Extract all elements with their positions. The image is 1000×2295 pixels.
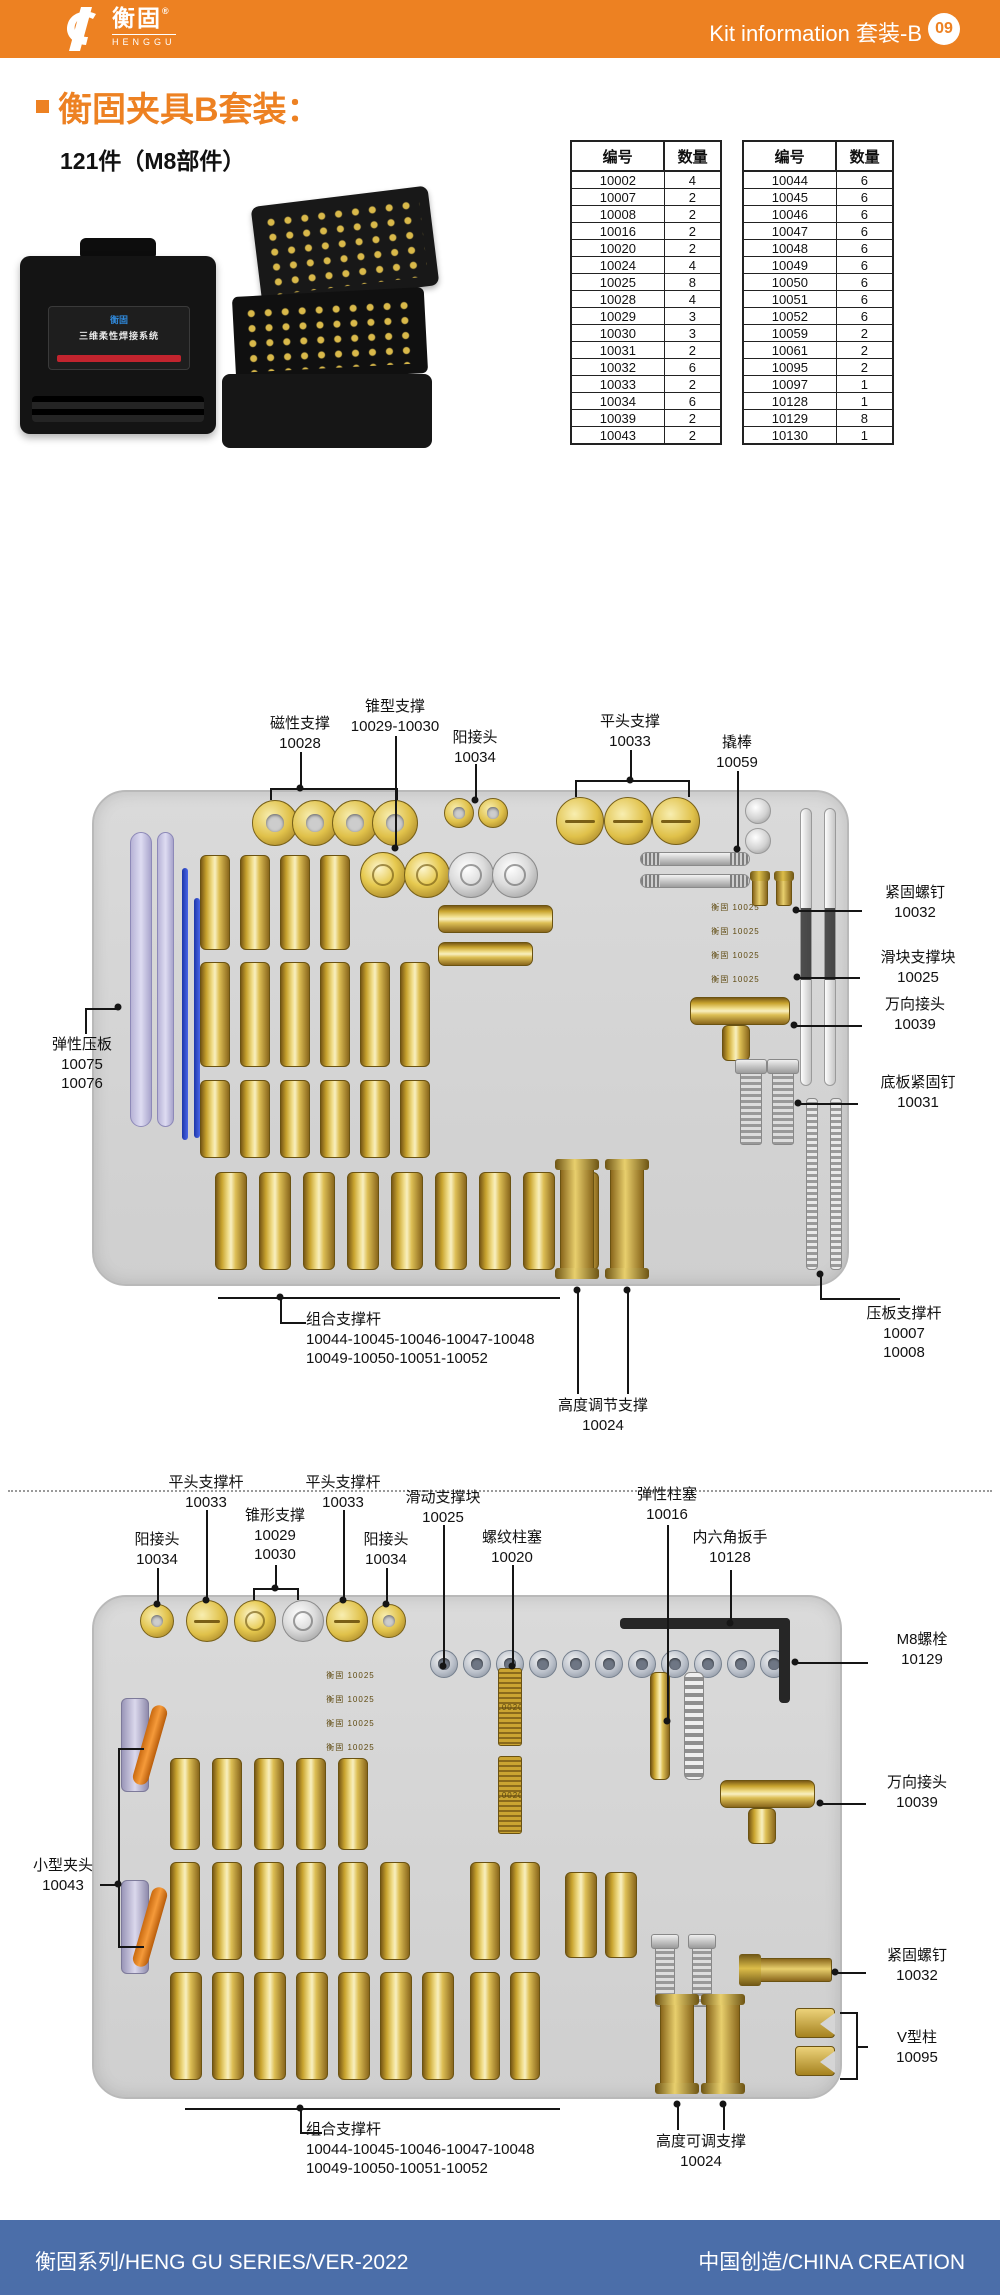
gold-cylinder-part bbox=[720, 1780, 815, 1808]
table-row: 100202 bbox=[571, 240, 721, 257]
gold-cylinder-part bbox=[510, 1862, 540, 1960]
connector-line bbox=[280, 1297, 282, 1322]
gold-cylinder-part bbox=[280, 1080, 310, 1158]
connector-dot bbox=[664, 1718, 671, 1725]
table-row: 100526 bbox=[743, 308, 893, 325]
height-adjust-support-part bbox=[706, 1995, 740, 2093]
gold-ring-support-part bbox=[478, 798, 508, 828]
case-logo-icon: 衡固 bbox=[49, 313, 189, 326]
part-number-cell: 10097 bbox=[743, 376, 836, 393]
gold-cylinder-part bbox=[523, 1172, 555, 1270]
quantity-cell: 2 bbox=[664, 206, 721, 223]
connector-line bbox=[118, 1748, 144, 1750]
connector-dot bbox=[440, 1663, 447, 1670]
page-title: 衡固夹具B套装： bbox=[58, 82, 321, 131]
connector-line bbox=[835, 1972, 866, 1974]
henggu-logo-icon bbox=[60, 6, 106, 52]
connector-line bbox=[627, 1288, 629, 1394]
part-number-cell: 10043 bbox=[571, 427, 664, 445]
label-male-connector: 阳接头 10034 bbox=[435, 728, 515, 767]
table-row: 100258 bbox=[571, 274, 721, 291]
connector-dot bbox=[154, 1601, 161, 1608]
part-number-cell: 10128 bbox=[743, 393, 836, 410]
gold-cylinder-part bbox=[212, 1972, 244, 2080]
m8-bolt-part bbox=[727, 1650, 755, 1678]
slide-support-block-part: 衡固 10025 bbox=[258, 1668, 443, 1683]
catalog-page: 衡固® HENGGU Kit information 套装-B 09 衡固夹具B… bbox=[0, 0, 1000, 2295]
column-header-quantity: 数量 bbox=[836, 141, 893, 171]
connector-dot bbox=[674, 2101, 681, 2108]
m8-bolt-part bbox=[529, 1650, 557, 1678]
label-combo-support-rods: 组合支撑杆 10044-10045-10046-10047-10048 1004… bbox=[306, 1310, 606, 1369]
quantity-cell: 2 bbox=[664, 223, 721, 240]
silver-cone-support-part bbox=[448, 852, 494, 898]
gold-cylinder-part bbox=[240, 1080, 270, 1158]
quantity-cell: 2 bbox=[664, 376, 721, 393]
case-red-stripe bbox=[57, 355, 181, 362]
gold-cylinder-part bbox=[435, 1172, 467, 1270]
case-label-plate: 衡固 三维柔性焊接系统 bbox=[48, 306, 190, 370]
gold-cylinder-part bbox=[200, 1080, 230, 1158]
connector-dot bbox=[794, 974, 801, 981]
connector-line bbox=[395, 736, 397, 848]
quantity-cell: 2 bbox=[664, 427, 721, 445]
connector-dot bbox=[793, 907, 800, 914]
gold-cylinder-part bbox=[215, 1172, 247, 1270]
gold-cylinder-part bbox=[254, 1758, 284, 1850]
gold-cylinder-part bbox=[438, 905, 553, 933]
table-row: 100952 bbox=[743, 359, 893, 376]
connector-line bbox=[85, 1008, 87, 1034]
connector-line bbox=[118, 1946, 144, 1948]
connector-dot bbox=[627, 777, 634, 784]
part-number-cell: 10007 bbox=[571, 189, 664, 206]
threaded-rod-part bbox=[806, 1098, 818, 1270]
quantity-cell: 3 bbox=[664, 325, 721, 342]
part-number-cell: 10044 bbox=[743, 171, 836, 189]
connector-dot bbox=[624, 1287, 631, 1294]
press-plate-rod-part bbox=[824, 808, 836, 1086]
height-adjust-support-part bbox=[610, 1160, 644, 1278]
connector-dot bbox=[720, 2101, 727, 2108]
fastening-screw-part bbox=[776, 872, 792, 906]
table-row: 100293 bbox=[571, 308, 721, 325]
gold-cylinder-part bbox=[565, 1872, 597, 1958]
connector-line bbox=[300, 2132, 322, 2134]
m8-bolt-part bbox=[562, 1650, 590, 1678]
label-height-adjust-support: 高度调节支撑 10024 bbox=[547, 1396, 659, 1435]
gold-cylinder-part bbox=[296, 1862, 326, 1960]
connector-line bbox=[118, 1748, 120, 1948]
brand-name-en: HENGGU bbox=[112, 34, 176, 47]
column-header-part-number: 编号 bbox=[743, 141, 836, 171]
connector-line bbox=[798, 1103, 858, 1105]
gold-cone-support-part bbox=[404, 852, 450, 898]
connector-line bbox=[343, 1510, 345, 1602]
threaded-plug-part: 10020 bbox=[498, 1756, 522, 1834]
case-body: 衡固 三维柔性焊接系统 bbox=[20, 256, 216, 434]
connector-dot bbox=[574, 1287, 581, 1294]
gold-cylinder-part bbox=[320, 1080, 350, 1158]
part-number-cell: 10052 bbox=[743, 308, 836, 325]
gold-flat-disc-part bbox=[556, 797, 604, 845]
connector-dot bbox=[297, 785, 304, 792]
quantity-cell: 8 bbox=[836, 410, 893, 427]
elastic-press-plate-part bbox=[130, 832, 152, 1127]
slide-support-block-part: 衡固 10025 bbox=[678, 972, 793, 987]
slide-support-block-part: 衡固 10025 bbox=[678, 924, 793, 939]
gold-cylinder-part bbox=[360, 1080, 390, 1158]
gold-cylinder-part bbox=[470, 1862, 500, 1960]
table-row: 100971 bbox=[743, 376, 893, 393]
m8-bolt-part bbox=[463, 1650, 491, 1678]
quantity-cell: 1 bbox=[836, 427, 893, 445]
label-pry-bar: 撬棒 10059 bbox=[697, 733, 777, 772]
quantity-cell: 2 bbox=[664, 342, 721, 359]
gold-cylinder-part bbox=[605, 1872, 637, 1958]
quantity-cell: 6 bbox=[836, 206, 893, 223]
connector-line bbox=[840, 2012, 856, 2014]
gold-cylinder-part bbox=[200, 962, 230, 1067]
header-bar: 衡固® HENGGU Kit information 套装-B 09 bbox=[0, 0, 1000, 58]
connector-line bbox=[667, 1525, 669, 1723]
kit-parts-dots bbox=[242, 298, 417, 373]
gold-cylinder-part bbox=[254, 1972, 286, 2080]
table-row: 100244 bbox=[571, 257, 721, 274]
table-row: 100612 bbox=[743, 342, 893, 359]
product-photo-open-case bbox=[222, 196, 437, 452]
part-number-cell: 10130 bbox=[743, 427, 836, 445]
part-number-cell: 10050 bbox=[743, 274, 836, 291]
gold-cylinder-part bbox=[400, 1080, 430, 1158]
registered-mark: ® bbox=[162, 6, 171, 16]
table-row: 100446 bbox=[743, 171, 893, 189]
connector-dot bbox=[727, 1620, 734, 1627]
part-number-cell: 10032 bbox=[571, 359, 664, 376]
base-fastening-pin-part bbox=[740, 1060, 762, 1145]
slide-support-block-part: 衡固 10025 bbox=[258, 1716, 443, 1731]
part-number-cell: 10048 bbox=[743, 240, 836, 257]
gold-cylinder-part bbox=[380, 1972, 412, 2080]
product-photo-closed-case: 衡固 三维柔性焊接系统 bbox=[20, 238, 216, 434]
connector-line bbox=[794, 1025, 862, 1027]
case-label-text: 三维柔性焊接系统 bbox=[49, 329, 189, 342]
quantity-cell: 6 bbox=[836, 308, 893, 325]
label-m8-bolt: M8螺栓 10129 bbox=[872, 1630, 972, 1669]
part-number-cell: 10047 bbox=[743, 223, 836, 240]
slide-support-block-part: 衡固 10025 bbox=[258, 1740, 443, 1755]
gold-cylinder-part bbox=[280, 962, 310, 1067]
gold-cylinder-part bbox=[748, 1808, 776, 1844]
table-row: 100432 bbox=[571, 427, 721, 445]
slide-support-block-part: 衡固 10025 bbox=[258, 1692, 443, 1707]
part-number-cell: 10129 bbox=[743, 410, 836, 427]
gold-cylinder-part bbox=[259, 1172, 291, 1270]
label-hex-wrench: 内六角扳手 10128 bbox=[672, 1528, 788, 1567]
connector-dot bbox=[734, 846, 741, 853]
gold-cylinder-part bbox=[479, 1172, 511, 1270]
label-spring-plunger: 弹性柱塞 10016 bbox=[622, 1485, 712, 1524]
table-row: 100592 bbox=[743, 325, 893, 342]
connector-dot bbox=[792, 1659, 799, 1666]
table-row: 101301 bbox=[743, 427, 893, 445]
silver-cone-support-part bbox=[492, 852, 538, 898]
quantity-cell: 6 bbox=[664, 393, 721, 410]
part-number-cell: 10039 bbox=[571, 410, 664, 427]
title-bullet-icon bbox=[36, 100, 49, 113]
connector-dot bbox=[297, 2105, 304, 2112]
brand-block: 衡固® HENGGU bbox=[112, 7, 176, 47]
label-slide-block: 滑块支撑块 10025 bbox=[858, 948, 978, 987]
table-row: 100082 bbox=[571, 206, 721, 223]
connector-dot bbox=[203, 1597, 210, 1604]
label-universal-joint: 万向接头 10039 bbox=[860, 995, 970, 1034]
label-press-plate-rod: 压板支撑杆 10007 10008 bbox=[848, 1304, 960, 1363]
part-number-cell: 10020 bbox=[571, 240, 664, 257]
connector-line bbox=[737, 771, 739, 851]
gold-cylinder-part bbox=[510, 1972, 540, 2080]
label-cone-support: 锥形支撑 10029 10030 bbox=[232, 1506, 318, 1565]
footer-creation-text: 中国创造/CHINA CREATION bbox=[698, 2246, 965, 2276]
gold-ring-support-part bbox=[140, 1604, 174, 1638]
quantity-cell: 2 bbox=[664, 240, 721, 257]
label-magnetic-support: 磁性支撑 10028 bbox=[255, 714, 345, 753]
connector-dot bbox=[817, 1800, 824, 1807]
part-number-cell: 10031 bbox=[571, 342, 664, 359]
connector-line bbox=[270, 788, 272, 800]
part-number-cell: 10051 bbox=[743, 291, 836, 308]
gold-cylinder-part bbox=[296, 1972, 328, 2080]
hex-wrench-part bbox=[620, 1618, 790, 1629]
pry-bar-part bbox=[640, 852, 750, 866]
connector-dot bbox=[509, 1663, 516, 1670]
gold-cylinder-part bbox=[722, 1025, 750, 1061]
table-row: 100506 bbox=[743, 274, 893, 291]
gold-cone-support-part bbox=[234, 1600, 276, 1642]
connector-line bbox=[688, 780, 690, 797]
quantity-cell: 1 bbox=[836, 393, 893, 410]
gold-ring-support-part bbox=[372, 1604, 406, 1638]
connector-line bbox=[300, 752, 302, 788]
parts-table-right: 编号 数量 1004461004561004661004761004861004… bbox=[742, 140, 894, 445]
label-flat-head-support: 平头支撑 10033 bbox=[583, 712, 677, 751]
gold-cylinder-part bbox=[690, 997, 790, 1025]
part-number-cell: 10095 bbox=[743, 359, 836, 376]
connector-dot bbox=[115, 1881, 122, 1888]
table-row: 100476 bbox=[743, 223, 893, 240]
fastening-screw-part bbox=[752, 872, 768, 906]
table-row: 100162 bbox=[571, 223, 721, 240]
gold-cylinder-part bbox=[240, 962, 270, 1067]
table-row: 100466 bbox=[743, 206, 893, 223]
connector-dot bbox=[472, 797, 479, 804]
label-threaded-plug: 螺纹柱塞 10020 bbox=[467, 1528, 557, 1567]
part-number-cell: 10059 bbox=[743, 325, 836, 342]
connector-line bbox=[840, 2078, 856, 2080]
v-column-part bbox=[795, 2046, 835, 2076]
part-number-cell: 10002 bbox=[571, 171, 664, 189]
connector-line bbox=[280, 1322, 306, 1324]
connector-dot bbox=[832, 1969, 839, 1976]
label-v-column: V型柱 10095 bbox=[872, 2028, 962, 2067]
connector-dot bbox=[383, 1601, 390, 1608]
table-row: 100456 bbox=[743, 189, 893, 206]
table-row: 100516 bbox=[743, 291, 893, 308]
base-fastening-pin-part bbox=[772, 1060, 794, 1145]
table-row: 100486 bbox=[743, 240, 893, 257]
connector-dot bbox=[272, 1585, 279, 1592]
connector-dot bbox=[115, 1004, 122, 1011]
connector-line bbox=[820, 1803, 866, 1805]
threaded-plug-part: 10020 bbox=[498, 1668, 522, 1746]
part-number-cell: 10008 bbox=[571, 206, 664, 223]
connector-line bbox=[730, 1570, 732, 1625]
gold-ring-support-part bbox=[444, 798, 474, 828]
gold-cylinder-part bbox=[338, 1972, 370, 2080]
spring-plunger-part bbox=[684, 1672, 704, 1780]
part-number-cell: 10024 bbox=[571, 257, 664, 274]
silver-disc-part bbox=[745, 798, 771, 824]
connector-line bbox=[300, 2108, 302, 2134]
connector-line bbox=[512, 1565, 514, 1668]
small-clamp-part bbox=[115, 1872, 175, 1984]
connector-line bbox=[577, 1288, 579, 1394]
connector-dot bbox=[791, 1022, 798, 1029]
open-case-base bbox=[222, 374, 432, 448]
silver-disc-part bbox=[745, 828, 771, 854]
height-adjust-support-part bbox=[660, 1995, 694, 2093]
gold-cylinder-part bbox=[470, 1972, 500, 2080]
gold-cylinder-part bbox=[254, 1862, 284, 1960]
gold-flat-disc-part bbox=[186, 1600, 228, 1642]
table-row: 100346 bbox=[571, 393, 721, 410]
gold-flat-disc-part bbox=[604, 797, 652, 845]
hex-wrench-part bbox=[779, 1618, 790, 1703]
connector-dot bbox=[795, 1100, 802, 1107]
part-number-cell: 10030 bbox=[571, 325, 664, 342]
connector-line bbox=[630, 750, 632, 780]
footer-series-text: 衡固系列/HENG GU SERIES/VER-2022 bbox=[35, 2246, 408, 2276]
connector-line bbox=[796, 910, 862, 912]
connector-dot bbox=[277, 1294, 284, 1301]
connector-line bbox=[575, 780, 577, 797]
gold-cylinder-part bbox=[338, 1862, 368, 1960]
connector-line bbox=[270, 788, 396, 790]
table-row: 100392 bbox=[571, 410, 721, 427]
quantity-cell: 4 bbox=[664, 171, 721, 189]
case-ribs bbox=[32, 396, 204, 422]
small-clamp-part bbox=[115, 1690, 175, 1802]
gold-cylinder-part bbox=[320, 962, 350, 1067]
pry-bar-part bbox=[640, 874, 750, 888]
label-fastening-screw: 紧固螺钉 10032 bbox=[862, 1946, 972, 1985]
gold-cylinder-part bbox=[380, 1862, 410, 1960]
connector-line bbox=[297, 1588, 299, 1600]
part-number-cell: 10061 bbox=[743, 342, 836, 359]
connector-line bbox=[856, 2046, 868, 2048]
connector-line bbox=[795, 1662, 868, 1664]
v-column-part bbox=[795, 2008, 835, 2038]
connector-dot bbox=[817, 1271, 824, 1278]
gold-cylinder-part bbox=[200, 855, 230, 950]
connector-line bbox=[443, 1525, 445, 1668]
slide-support-block-part: 衡固 10025 bbox=[678, 948, 793, 963]
column-header-part-number: 编号 bbox=[571, 141, 664, 171]
label-combo-support-rods: 组合支撑杆 10044-10045-10046-10047-10048 1004… bbox=[306, 2120, 606, 2179]
header-title: Kit information 套装-B bbox=[709, 16, 922, 48]
label-universal-joint: 万向接头 10039 bbox=[862, 1773, 972, 1812]
table-row: 101298 bbox=[743, 410, 893, 427]
quantity-cell: 2 bbox=[664, 189, 721, 206]
part-number-cell: 10029 bbox=[571, 308, 664, 325]
press-plate-rod-part bbox=[800, 808, 812, 1086]
table-row: 100024 bbox=[571, 171, 721, 189]
quantity-cell: 6 bbox=[836, 240, 893, 257]
table-row: 100312 bbox=[571, 342, 721, 359]
table-row: 100326 bbox=[571, 359, 721, 376]
gold-cylinder-part bbox=[280, 855, 310, 950]
part-number-cell: 10033 bbox=[571, 376, 664, 393]
table-row: 100496 bbox=[743, 257, 893, 274]
gold-flat-disc-part bbox=[326, 1600, 368, 1642]
gold-cylinder-part bbox=[240, 855, 270, 950]
part-number-cell: 10034 bbox=[571, 393, 664, 410]
footer-bar: 衡固系列/HENG GU SERIES/VER-2022 中国创造/CHINA … bbox=[0, 2220, 1000, 2295]
gold-cylinder-part bbox=[296, 1758, 326, 1850]
connector-line bbox=[253, 1588, 255, 1600]
connector-line bbox=[185, 2108, 560, 2110]
m8-bolt-part bbox=[595, 1650, 623, 1678]
connector-line bbox=[206, 1510, 208, 1602]
kit-parts-dots bbox=[262, 197, 429, 296]
quantity-cell: 6 bbox=[836, 257, 893, 274]
gold-cylinder-part bbox=[212, 1758, 242, 1850]
connector-line bbox=[218, 1297, 560, 1299]
quantity-cell: 6 bbox=[664, 359, 721, 376]
quantity-cell: 4 bbox=[664, 257, 721, 274]
table-row: 100284 bbox=[571, 291, 721, 308]
open-case-tray bbox=[232, 287, 428, 383]
connector-line bbox=[797, 977, 860, 979]
connector-line bbox=[820, 1298, 900, 1300]
gold-cylinder-part bbox=[438, 942, 533, 966]
threaded-rod-part bbox=[830, 1098, 842, 1270]
fastening-screw-part bbox=[740, 1958, 832, 1982]
part-number-cell: 10016 bbox=[571, 223, 664, 240]
part-number-cell: 10025 bbox=[571, 274, 664, 291]
label-fastening-screw: 紧固螺钉 10032 bbox=[860, 883, 970, 922]
gold-cylinder-part bbox=[212, 1862, 242, 1960]
gold-cylinder-part bbox=[347, 1172, 379, 1270]
label-elastic-press-plate: 弹性压板 10075 10076 bbox=[32, 1035, 132, 1094]
connector-dot bbox=[340, 1597, 347, 1604]
label-height-adjust-support: 高度可调支撑 10024 bbox=[645, 2132, 757, 2171]
table-row: 101281 bbox=[743, 393, 893, 410]
gold-cylinder-part bbox=[320, 855, 350, 950]
part-number-cell: 10045 bbox=[743, 189, 836, 206]
gold-cone-support-part bbox=[360, 852, 406, 898]
table-row: 100332 bbox=[571, 376, 721, 393]
label-base-fastening-pin: 底板紧固钉 10031 bbox=[856, 1073, 980, 1112]
label-male-connector: 阳接头 10034 bbox=[346, 1530, 426, 1569]
gold-cylinder-part bbox=[391, 1172, 423, 1270]
elastic-press-plate-part bbox=[157, 832, 174, 1127]
quantity-cell: 4 bbox=[664, 291, 721, 308]
label-small-clamp: 小型夹头 10043 bbox=[20, 1856, 106, 1895]
quantity-cell: 6 bbox=[836, 171, 893, 189]
quantity-cell: 6 bbox=[836, 189, 893, 206]
gold-cylinder-part bbox=[360, 962, 390, 1067]
